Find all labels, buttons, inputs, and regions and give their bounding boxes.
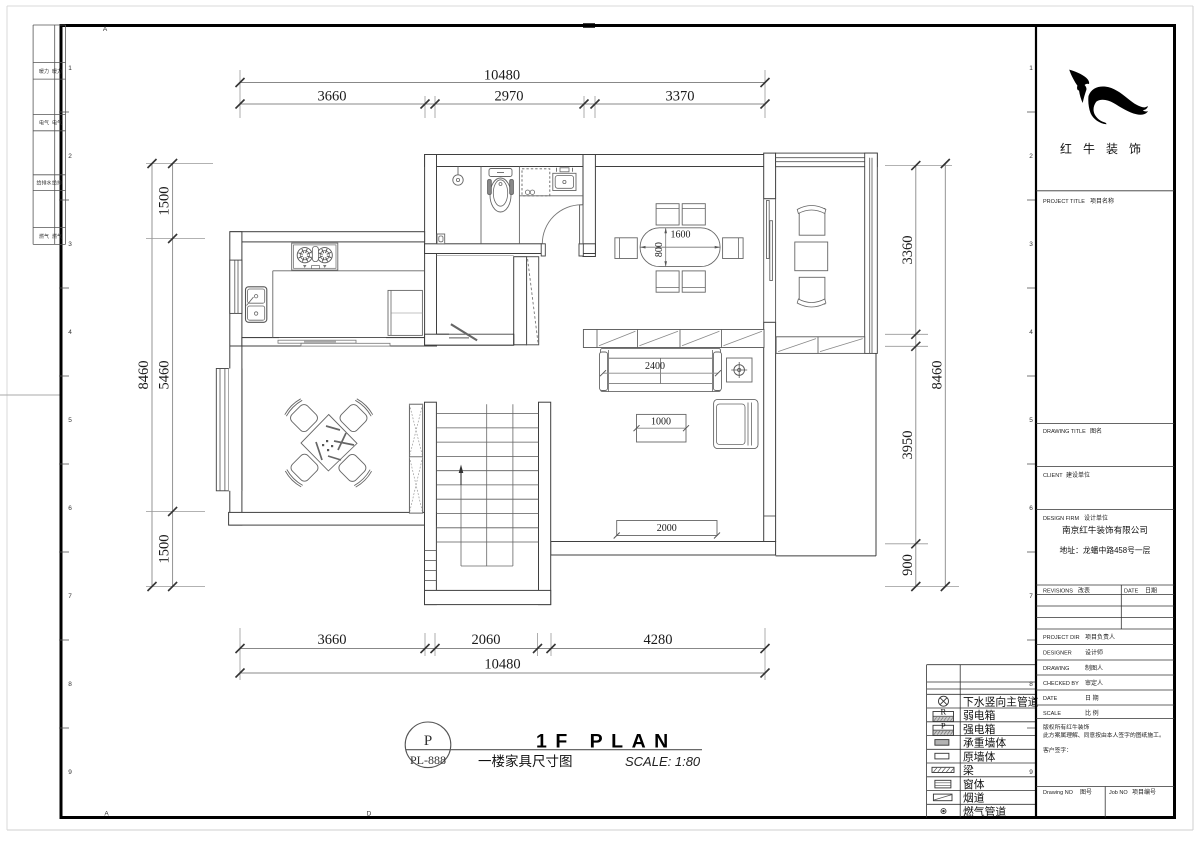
svg-text:暖力: 暖力 (39, 68, 49, 75)
svg-text:项目名称: 项目名称 (1090, 197, 1114, 205)
svg-text:R: R (940, 707, 946, 717)
svg-text:地址：龙蟠中路458号一层: 地址：龙蟠中路458号一层 (1060, 545, 1151, 555)
svg-text:4: 4 (1029, 329, 1033, 336)
svg-text:南京红牛装饰有限公司: 南京红牛装饰有限公司 (1062, 524, 1148, 535)
svg-text:1500: 1500 (157, 535, 173, 564)
svg-text:2400: 2400 (645, 361, 665, 372)
svg-text:CHECKED BY: CHECKED BY (1043, 681, 1079, 687)
svg-text:6: 6 (1029, 505, 1033, 512)
svg-text:900: 900 (900, 554, 916, 576)
svg-text:DATE: DATE (1124, 589, 1139, 595)
svg-text:CLIENT: CLIENT (1043, 473, 1063, 479)
svg-text:1F PLAN: 1F PLAN (536, 731, 677, 753)
svg-text:日 期: 日 期 (1085, 694, 1099, 702)
svg-text:暖力: 暖力 (52, 68, 62, 75)
svg-text:DESIGN FIRM: DESIGN FIRM (1043, 516, 1079, 522)
svg-text:给排: 给排 (52, 180, 62, 187)
svg-text:8460: 8460 (929, 361, 945, 390)
svg-text:给排水: 给排水 (36, 180, 51, 187)
svg-text:SCALE: SCALE (1043, 711, 1061, 717)
svg-text:Drawing NO: Drawing NO (1043, 790, 1074, 796)
svg-text:6: 6 (68, 505, 72, 512)
svg-text:1500: 1500 (157, 187, 173, 216)
svg-text:P: P (424, 733, 432, 749)
svg-text:PL-888: PL-888 (410, 753, 446, 767)
svg-text:设计师: 设计师 (1085, 649, 1103, 657)
svg-text:9: 9 (68, 769, 72, 776)
svg-text:10480: 10480 (484, 68, 520, 84)
svg-text:5: 5 (1029, 417, 1033, 424)
svg-text:2060: 2060 (472, 632, 501, 648)
svg-text:5460: 5460 (157, 361, 173, 390)
svg-text:3370: 3370 (666, 89, 695, 105)
svg-text:9: 9 (1029, 769, 1033, 776)
svg-text:Job NO: Job NO (1109, 790, 1128, 796)
svg-text:DRAWING TITLE: DRAWING TITLE (1043, 429, 1086, 435)
svg-text:项目负责人: 项目负责人 (1085, 633, 1115, 641)
svg-text:此方案属理解、同意按由本人签字的图纸施工。: 此方案属理解、同意按由本人签字的图纸施工。 (1043, 731, 1165, 739)
svg-text:3660: 3660 (318, 632, 347, 648)
svg-text:8: 8 (68, 681, 72, 688)
svg-text:改表: 改表 (1078, 587, 1090, 595)
svg-text:A: A (104, 811, 109, 818)
svg-text:建设单位: 建设单位 (1066, 471, 1090, 479)
svg-text:设计单位: 设计单位 (1084, 514, 1108, 522)
svg-text:烟道: 烟道 (963, 791, 985, 805)
svg-text:梁: 梁 (963, 763, 974, 777)
svg-text:1: 1 (68, 65, 72, 72)
svg-text:红牛装饰: 红牛装饰 (1060, 141, 1152, 156)
svg-text:下水竖向主管道: 下水竖向主管道 (963, 694, 1039, 708)
svg-text:2: 2 (68, 153, 72, 160)
svg-text:A: A (103, 26, 108, 33)
svg-text:图名: 图名 (1090, 427, 1102, 435)
svg-text:4280: 4280 (644, 632, 673, 648)
svg-text:客户签字：: 客户签字： (1043, 746, 1072, 754)
svg-text:3: 3 (68, 241, 72, 248)
svg-text:3360: 3360 (900, 236, 916, 265)
svg-text:P: P (941, 720, 946, 730)
svg-text:窗体: 窗体 (963, 777, 985, 791)
svg-text:1000: 1000 (651, 417, 671, 428)
svg-text:10480: 10480 (484, 657, 520, 673)
svg-text:7: 7 (1029, 593, 1033, 600)
svg-text:2: 2 (1029, 153, 1033, 160)
svg-text:审定人: 审定人 (1085, 679, 1103, 687)
svg-text:弱电箱: 弱电箱 (963, 708, 996, 722)
svg-text:PROJECT DIR: PROJECT DIR (1043, 635, 1080, 641)
svg-text:燃气管道: 燃气管道 (963, 804, 1006, 818)
svg-text:比 例: 比 例 (1085, 709, 1099, 717)
svg-text:3: 3 (1029, 241, 1033, 248)
svg-text:项目编号: 项目编号 (1132, 788, 1156, 796)
svg-text:PROJECT TITLE: PROJECT TITLE (1043, 199, 1085, 205)
svg-text:D: D (367, 811, 372, 818)
svg-text:3950: 3950 (900, 431, 916, 460)
svg-text:4: 4 (68, 329, 72, 336)
svg-text:SCALE: 1:80: SCALE: 1:80 (625, 754, 701, 769)
svg-text:制图人: 制图人 (1085, 664, 1103, 672)
svg-text:电气: 电气 (39, 120, 49, 127)
svg-text:2000: 2000 (657, 523, 677, 534)
svg-text:3660: 3660 (318, 89, 347, 105)
svg-text:图号: 图号 (1080, 789, 1092, 796)
svg-text:一楼家具尺寸图: 一楼家具尺寸图 (478, 753, 573, 769)
svg-text:1600: 1600 (671, 230, 691, 241)
svg-text:DATE: DATE (1043, 696, 1058, 702)
svg-text:7: 7 (68, 593, 72, 600)
svg-text:承重墙体: 承重墙体 (963, 736, 1006, 750)
svg-text:强电箱: 强电箱 (963, 722, 996, 736)
svg-text:燃气: 燃气 (39, 233, 49, 240)
svg-text:电气: 电气 (52, 120, 62, 127)
svg-text:版权所有红牛装饰: 版权所有红牛装饰 (1043, 723, 1090, 731)
svg-text:DESIGNER: DESIGNER (1043, 651, 1072, 657)
svg-text:原墙体: 原墙体 (963, 749, 996, 763)
svg-text:2970: 2970 (495, 89, 524, 105)
svg-text:燃气: 燃气 (52, 233, 62, 240)
svg-text:5: 5 (68, 417, 72, 424)
svg-text:DRAWING: DRAWING (1043, 666, 1069, 672)
svg-text:800: 800 (654, 242, 665, 257)
svg-text:REVISIONS: REVISIONS (1043, 589, 1073, 595)
svg-text:8460: 8460 (136, 361, 152, 390)
svg-text:日期: 日期 (1145, 587, 1157, 595)
svg-text:1: 1 (1029, 65, 1033, 72)
